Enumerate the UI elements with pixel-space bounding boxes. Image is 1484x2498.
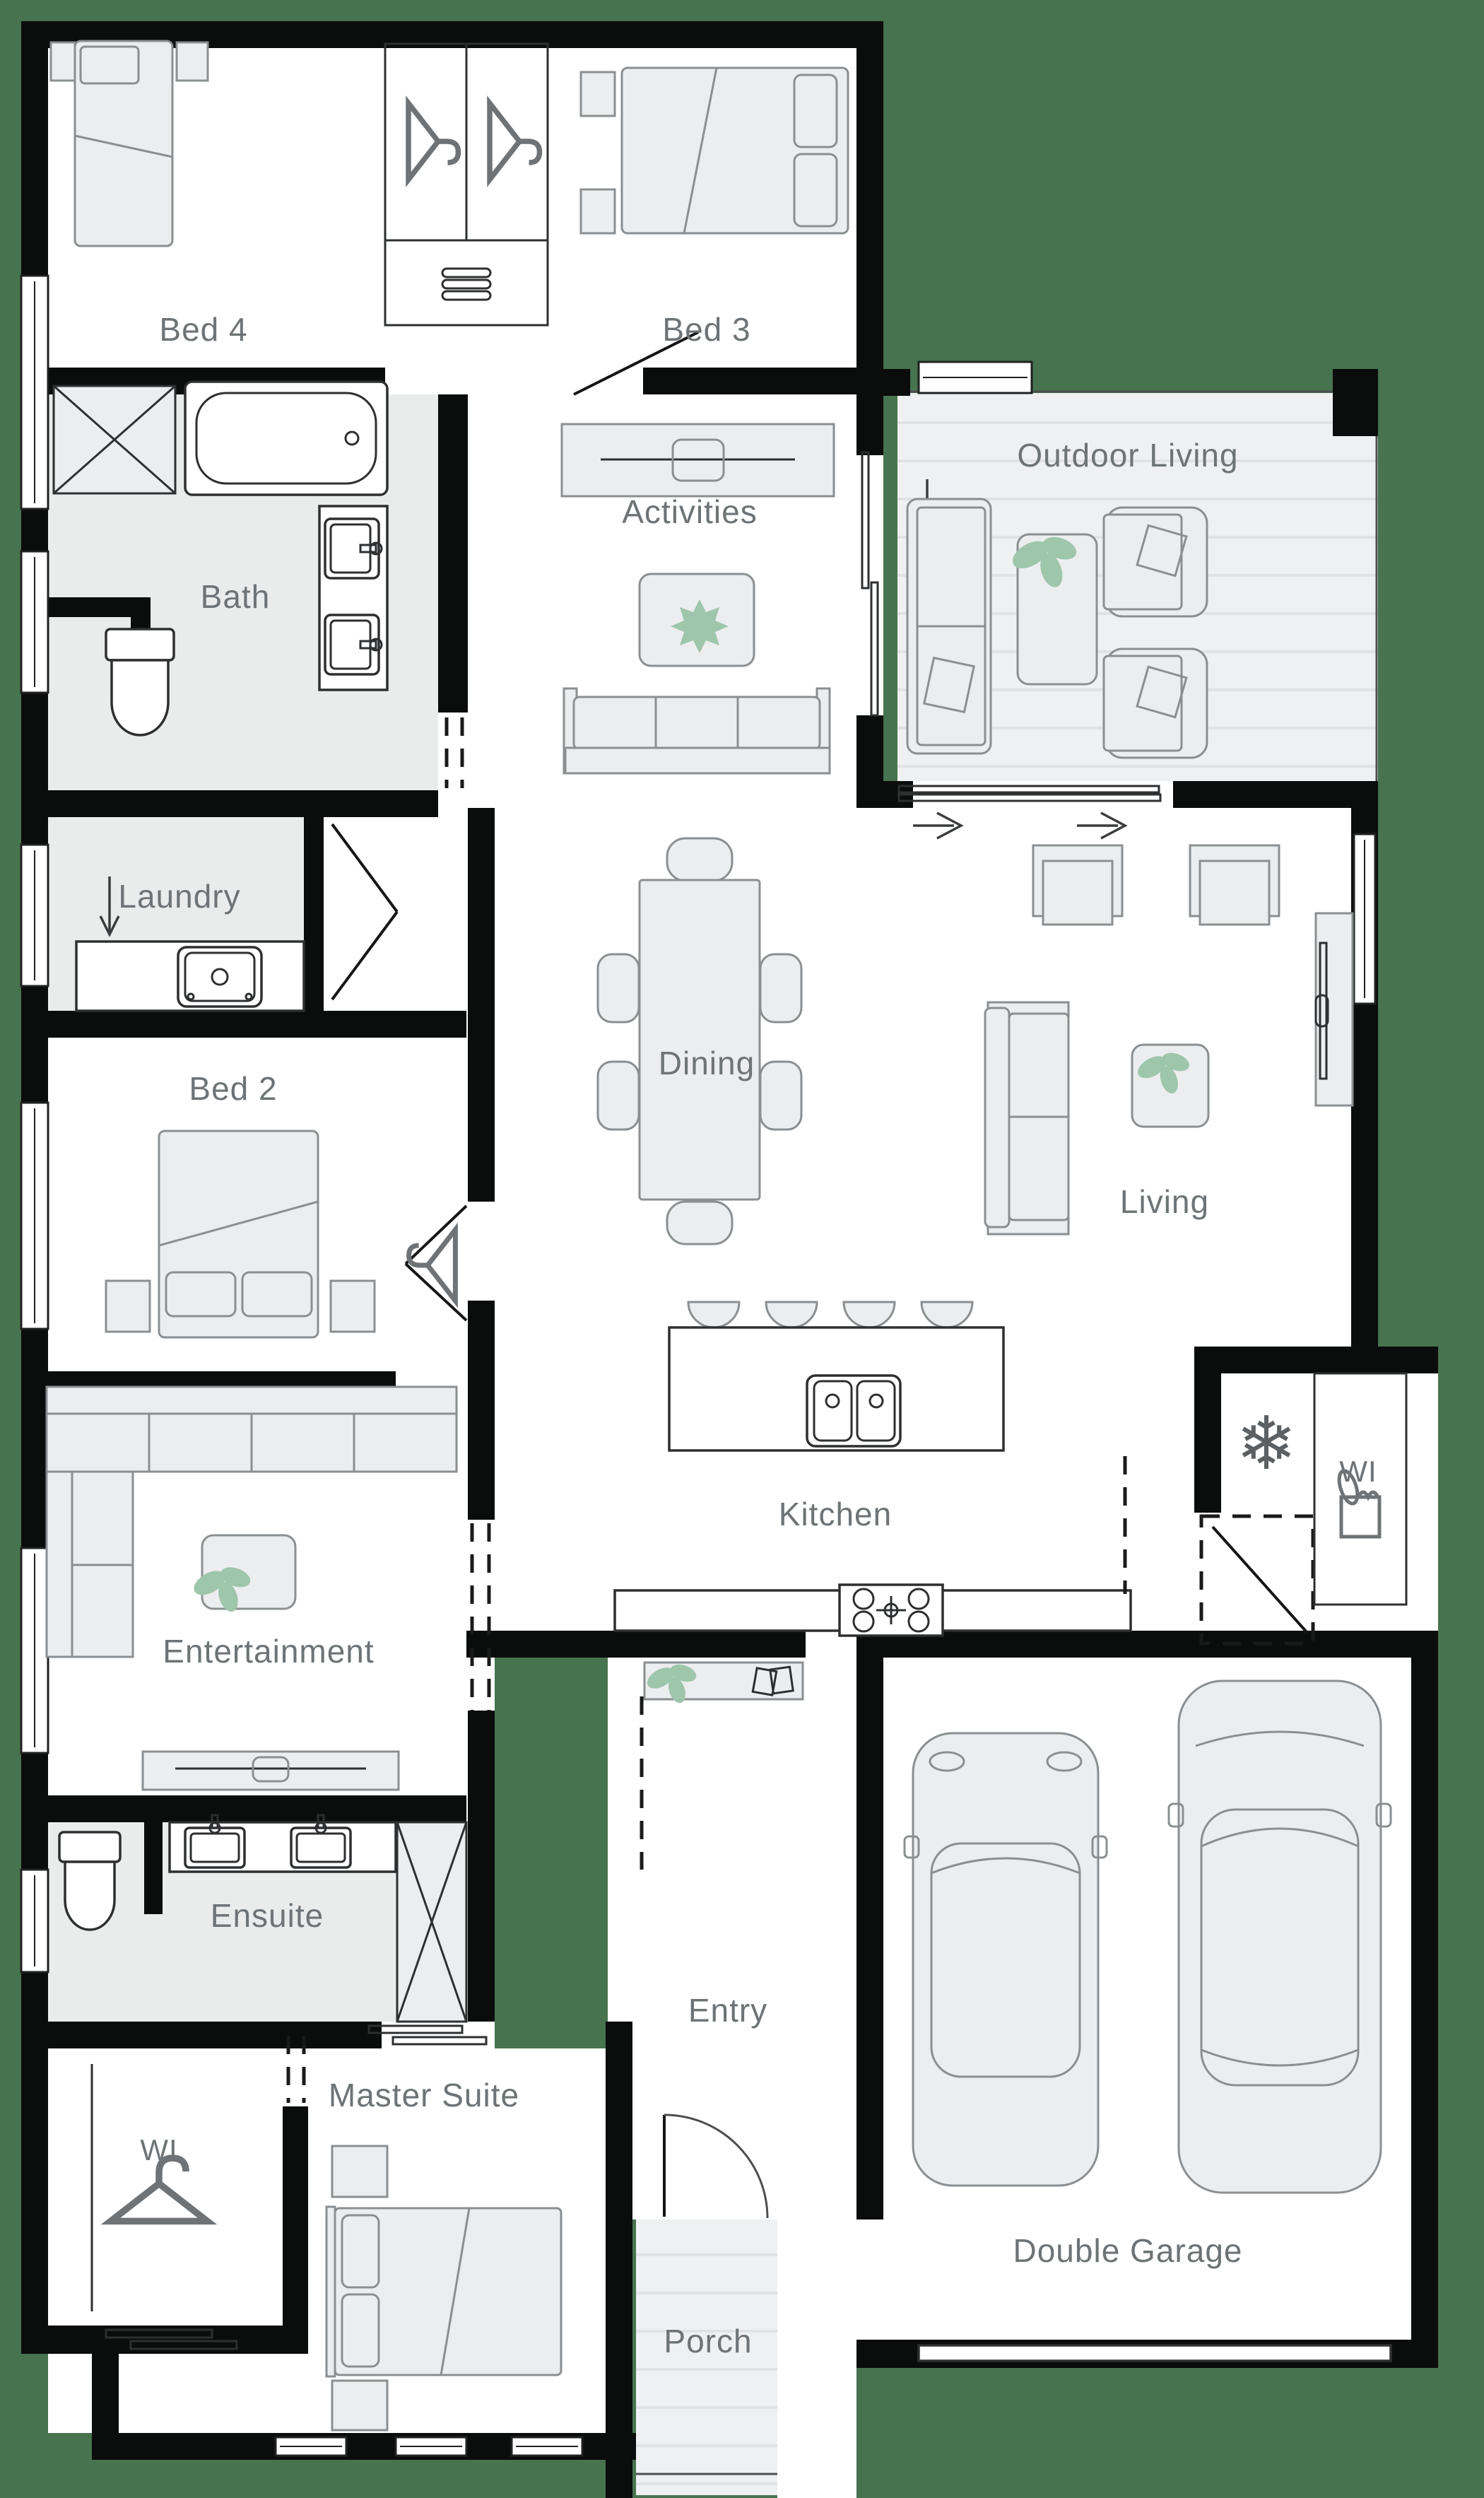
cooktop bbox=[840, 1585, 943, 1636]
car bbox=[905, 1733, 1107, 2186]
outdoor-living-label: Outdoor Living bbox=[1017, 437, 1238, 474]
toilet bbox=[59, 1832, 120, 1930]
shower bbox=[397, 1822, 466, 2022]
sofa bbox=[985, 1002, 1068, 1234]
ensuite-vanity bbox=[170, 1815, 396, 1872]
bath-vanity bbox=[319, 506, 387, 690]
dresser-tv bbox=[562, 424, 834, 496]
outdoor-armchair bbox=[1104, 508, 1207, 616]
shower bbox=[54, 386, 175, 493]
window-bath bbox=[21, 551, 48, 693]
entry-label: Entry bbox=[688, 1992, 767, 2029]
armchair bbox=[1190, 845, 1279, 925]
outdoor-table bbox=[1008, 533, 1097, 684]
tv-unit bbox=[143, 1752, 399, 1790]
bed3-furniture bbox=[581, 68, 848, 233]
toilet bbox=[106, 629, 174, 735]
window-bed2 bbox=[21, 1103, 48, 1329]
double-garage-label: Double Garage bbox=[1013, 2232, 1243, 2269]
bed3-label: Bed 3 bbox=[662, 311, 750, 348]
porch-label: Porch bbox=[664, 2323, 752, 2359]
play-rug bbox=[640, 574, 754, 666]
window-bed3-north bbox=[919, 362, 1032, 393]
kitchen-label: Kitchen bbox=[779, 1496, 892, 1532]
master-suite-label: Master Suite bbox=[329, 2077, 519, 2113]
sofa bbox=[564, 688, 830, 773]
living-label: Living bbox=[1120, 1183, 1209, 1220]
window-ensuite bbox=[21, 1870, 48, 1972]
outdoor-sofa bbox=[907, 499, 991, 753]
dining-label: Dining bbox=[659, 1045, 755, 1081]
window-entertainment bbox=[21, 1548, 48, 1753]
basin bbox=[325, 519, 382, 578]
entertainment-label: Entertainment bbox=[163, 1633, 374, 1670]
bed4-label: Bed 4 bbox=[159, 311, 247, 348]
pantry-label: WI bbox=[1339, 1455, 1377, 1488]
garage-door bbox=[919, 2345, 1391, 2361]
floor-plan-canvas: ❄ bbox=[0, 0, 1484, 2498]
floor-plan: ❄ bbox=[0, 0, 1484, 2498]
laundry-label: Laundry bbox=[118, 878, 240, 915]
island-sink bbox=[807, 1376, 900, 1446]
window-living-east bbox=[1354, 834, 1375, 1004]
coffee-table bbox=[1132, 1045, 1208, 1127]
window-laundry bbox=[21, 845, 48, 986]
activities-label: Activities bbox=[622, 493, 757, 530]
ensuite-label: Ensuite bbox=[211, 1897, 324, 1934]
car bbox=[1169, 1681, 1391, 2193]
bed2-label: Bed 2 bbox=[189, 1070, 277, 1107]
laundry-sink bbox=[178, 947, 261, 1007]
basin bbox=[325, 615, 382, 674]
armchair bbox=[1033, 845, 1122, 925]
window-bed4 bbox=[21, 276, 48, 509]
console-table bbox=[644, 1661, 803, 1705]
outdoor-armchair bbox=[1104, 649, 1207, 758]
snowflake-icon: ❄ bbox=[1235, 1400, 1297, 1487]
windows-master-south bbox=[276, 2437, 582, 2456]
coffee-table bbox=[190, 1535, 295, 1614]
tv-panel bbox=[1316, 913, 1353, 1106]
bath-label: Bath bbox=[201, 578, 271, 615]
walk-in-robe-label: WI bbox=[140, 2133, 177, 2166]
bathtub bbox=[185, 382, 387, 495]
